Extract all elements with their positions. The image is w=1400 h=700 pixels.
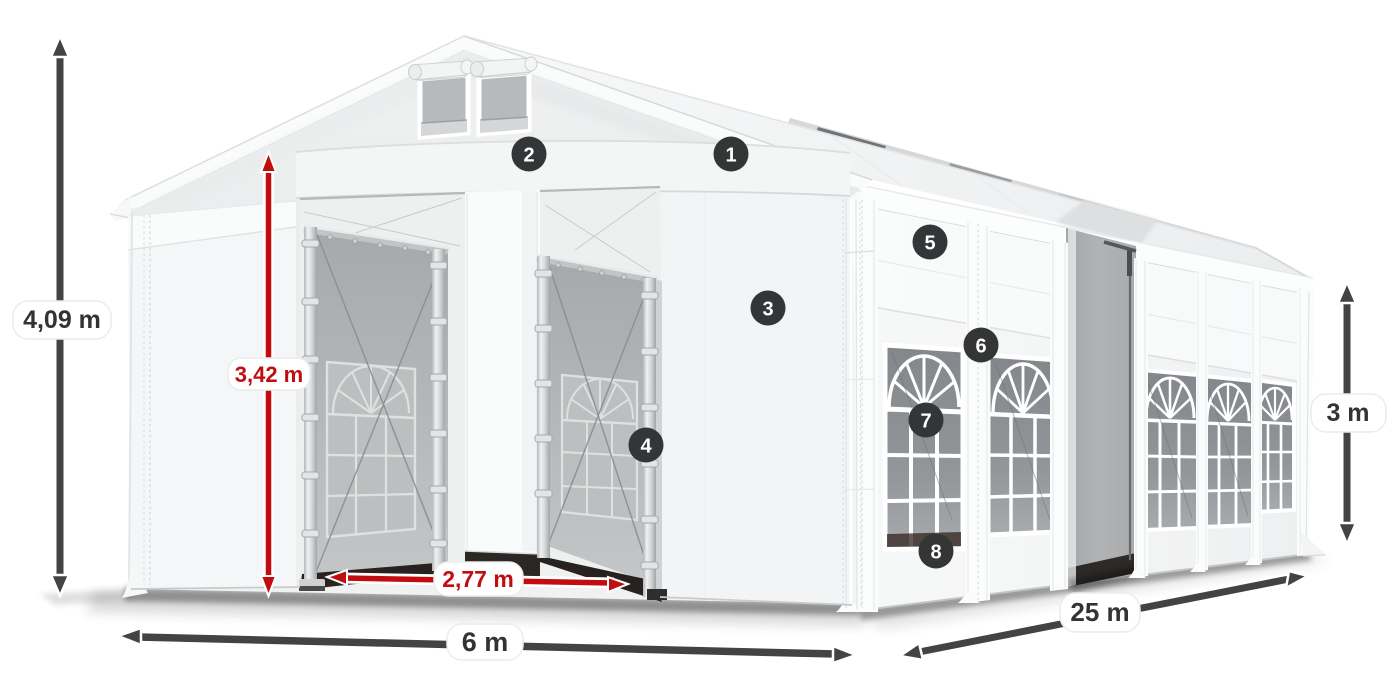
svg-text:6 m: 6 m — [462, 627, 509, 657]
svg-text:5: 5 — [924, 233, 935, 255]
svg-text:7: 7 — [920, 411, 931, 433]
svg-text:2,77 m: 2,77 m — [442, 566, 514, 592]
svg-text:1: 1 — [725, 145, 736, 167]
svg-text:3,42 m: 3,42 m — [235, 362, 304, 387]
svg-text:6: 6 — [975, 336, 986, 358]
svg-text:3: 3 — [762, 299, 773, 321]
svg-text:4,09 m: 4,09 m — [23, 306, 101, 334]
svg-text:2: 2 — [523, 145, 534, 167]
svg-text:8: 8 — [930, 542, 941, 564]
svg-text:4: 4 — [640, 436, 652, 458]
svg-text:3 m: 3 m — [1326, 399, 1369, 427]
svg-text:25 m: 25 m — [1070, 597, 1129, 627]
